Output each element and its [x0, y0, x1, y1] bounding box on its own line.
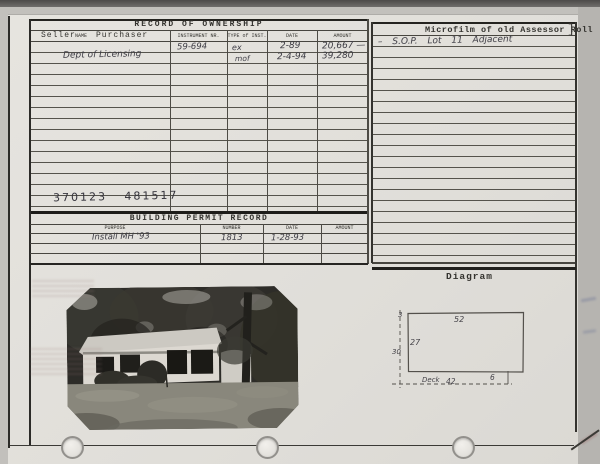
building-outline — [408, 313, 524, 373]
ownership-row1-type: ex — [232, 44, 242, 52]
ownership-row2-date: 2-4-94 — [277, 53, 307, 63]
microfilm-title-bracket: ] — [567, 23, 575, 36]
ownership-col-instrument: INSTRUMENT NR. — [170, 34, 227, 39]
house-window-4 — [191, 350, 213, 374]
ownership-col-divider-instrument — [170, 30, 171, 211]
ownership-col-seller: Seller — [41, 32, 76, 40]
ownership-col-divider-amount — [317, 30, 318, 211]
microfilm-bottom-line — [372, 262, 576, 264]
card-top-edge — [8, 14, 578, 15]
permit-rule-2 — [30, 253, 368, 254]
permit-col-date: DATE — [263, 226, 321, 231]
ownership-row1-instrument: 59-694 — [177, 43, 207, 52]
ownership-col-divider-type — [227, 30, 228, 211]
permit-col-purpose: PURPOSE — [30, 226, 200, 231]
label-height: 27 — [410, 338, 421, 347]
diagram-title: Diagram — [446, 272, 493, 282]
ownership-left-border — [29, 19, 31, 445]
scanned-assessor-card: RECORD OF OWNERSHIP Seller NAME Purchase… — [0, 0, 600, 464]
microfilm-ruled-lines — [372, 36, 576, 262]
permit-rule-1 — [30, 243, 368, 244]
bleedthrough-text-1 — [32, 280, 94, 300]
ownership-row1-date: 2-89 — [280, 42, 301, 51]
permit-header-underline — [30, 233, 368, 234]
permit-row1-purpose: Install MH '93 — [92, 232, 150, 242]
ownership-col-purchaser: Purchaser — [96, 32, 148, 40]
top-scan-band — [0, 0, 600, 7]
diagram-heavy-divider — [372, 267, 576, 270]
microfilm-left-border — [371, 22, 373, 263]
sketch-labels: 3 52 27 30 Deck 42 6 — [392, 311, 495, 386]
ownership-title: RECORD OF OWNERSHIP — [30, 21, 368, 29]
permit-title-underline — [30, 224, 368, 225]
permit-col-number: NUMBER — [200, 226, 263, 231]
card-left-border — [8, 16, 10, 448]
next-card-edge-strip — [578, 7, 600, 464]
label-width: 52 — [454, 315, 464, 324]
label-right-offset: 6 — [490, 373, 495, 382]
bleedthrough-text-2 — [30, 348, 102, 378]
punch-hole-right — [452, 436, 475, 459]
permit-row1-date: 1-28-93 — [271, 234, 304, 243]
ownership-col-name: NAME — [75, 34, 87, 39]
microfilm-top-border — [372, 22, 576, 24]
house-window-3 — [167, 350, 187, 374]
ownership-row2-type: mof — [235, 55, 250, 63]
label-deck-length: 42 — [446, 377, 456, 386]
ownership-col-date: DATE — [267, 34, 317, 39]
punch-hole-left — [61, 436, 84, 459]
permit-bottom-border — [30, 263, 368, 265]
label-top-offset: 3 — [398, 311, 402, 319]
label-left-dimension: 30 — [392, 348, 401, 356]
permit-row1-number: 1813 — [221, 234, 243, 243]
permit-col-amount: AMOUNT — [321, 226, 368, 231]
bottom-rule — [10, 445, 574, 446]
plot-sketch: 3 52 27 30 Deck 42 6 — [385, 283, 585, 395]
permit-title: BUILDING PERMIT RECORD — [30, 215, 368, 223]
parcel-numbers: 370123 481517 — [53, 190, 179, 204]
punch-hole-center — [256, 436, 279, 459]
ownership-row2-seller: Dept of Licensing — [63, 50, 142, 61]
ownership-col-amount: AMOUNT — [317, 34, 368, 39]
house-window-2 — [120, 354, 140, 372]
label-deck: Deck — [422, 376, 441, 384]
ownership-col-type: TYPE of INST. — [227, 34, 267, 39]
ownership-row2-amount: 39,280 — [322, 52, 354, 62]
ownership-col-divider-date — [267, 30, 268, 211]
